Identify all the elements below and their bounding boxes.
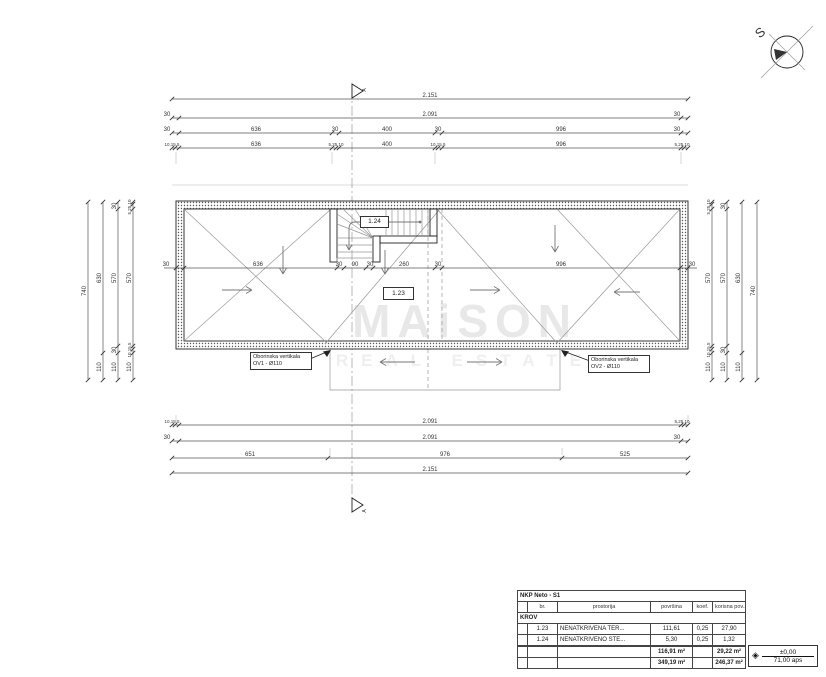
table-total-row: 349,19 m² 246,37 m² xyxy=(518,658,746,669)
section-marker-top: A xyxy=(362,88,368,92)
room-label-terrace: 1.23 xyxy=(383,287,414,300)
dim-label: 110 xyxy=(112,362,118,372)
elevation-absolute: 71,00 aps xyxy=(762,657,814,664)
dim-label: 10,15,5 xyxy=(164,419,180,424)
row-koef: 0,25 xyxy=(693,624,713,635)
room-label-stair: 1.24 xyxy=(360,216,389,228)
dim-label: 30 xyxy=(674,112,681,118)
level-symbol-icon: ◈ xyxy=(752,651,759,661)
total-area: 349,19 m² xyxy=(651,658,693,669)
table-title: NKP Neto - S1 xyxy=(518,591,746,602)
dim-label: 996 xyxy=(556,142,567,148)
dim-label: 996 xyxy=(556,262,567,268)
extension-lines xyxy=(172,152,688,455)
drain-leaders xyxy=(305,350,590,361)
dim-label: 651 xyxy=(245,452,256,458)
table-row: 1.23 NENATKRIVENA TER... 111,61 0,25 27,… xyxy=(518,624,746,635)
drain-label-ov1: Oborinska vertikala OV1 - Ø110 xyxy=(250,352,312,370)
dim-label: 30 xyxy=(721,346,727,353)
row-name: NENATKRIVENO STE... xyxy=(558,635,651,647)
dim-label: 30 xyxy=(332,127,339,133)
ov2-line1: Oborinska vertikala xyxy=(591,357,647,364)
table-title-row: NKP Neto - S1 xyxy=(518,591,746,602)
dim-label: 30 xyxy=(674,435,681,441)
dim-label: 570 xyxy=(706,272,712,283)
table-row: 1.24 NENATKRIVENO STE... 5,30 0,25 1,32 xyxy=(518,635,746,647)
dim-label: 636 xyxy=(251,142,262,148)
dim-label: 740 xyxy=(82,285,88,296)
dim-label: 636 xyxy=(251,127,262,133)
dim-label: 110 xyxy=(706,362,712,372)
subtotal-area: 116,91 m² xyxy=(651,646,693,658)
dim-label: 30 xyxy=(435,262,442,268)
dim-label: 10,15,5 xyxy=(430,142,446,147)
dim-label: 525 xyxy=(620,452,631,458)
lower-roof-outline xyxy=(330,349,560,390)
dim-label: 400 xyxy=(382,142,393,148)
dim-label: 976 xyxy=(440,452,451,458)
ov1-line2: OV1 - Ø110 xyxy=(253,361,309,368)
dim-label: 110 xyxy=(721,362,727,372)
dim-label: 30 xyxy=(367,262,374,268)
valley-lines xyxy=(184,209,680,344)
subtotal-korisna: 29,22 m² xyxy=(713,646,746,658)
dim-label: 30 xyxy=(164,435,171,441)
area-table: NKP Neto - S1 br. prostorija površina ko… xyxy=(517,590,746,669)
table-header-row: br. prostorija površina koef. korisna po… xyxy=(518,602,746,613)
dim-label: 2.091 xyxy=(422,435,438,441)
dim-label: 2.091 xyxy=(422,419,438,425)
dim-label: 5,25,10 xyxy=(328,142,344,147)
dim-label: 5,25,10 xyxy=(706,199,711,215)
col-povrsina: površina xyxy=(651,602,693,613)
col-korisna: korisna pov... xyxy=(713,602,746,613)
dim-label: 996 xyxy=(556,127,567,133)
dim-label: 636 xyxy=(253,262,264,268)
dim-label: 570 xyxy=(112,272,118,283)
dim-label: 30 xyxy=(435,127,442,133)
row-korisna: 27,90 xyxy=(713,624,746,635)
dim-label: 5,25,10 xyxy=(674,142,690,147)
dim-label: 30 xyxy=(721,202,727,209)
outer-wall-hatch xyxy=(176,201,688,349)
row-korisna: 1,32 xyxy=(713,635,746,647)
roof-plan-drawing: A A xyxy=(0,0,826,677)
dim-label: 570 xyxy=(721,272,727,283)
dim-label: 30 xyxy=(112,202,118,209)
north-label: S xyxy=(752,24,769,41)
dim-label: 30 xyxy=(163,262,170,268)
col-blank xyxy=(518,602,528,613)
dim-label: 10,15,5 xyxy=(127,342,132,358)
col-br: br. xyxy=(528,602,558,613)
total-korisna: 246,37 m² xyxy=(713,658,746,669)
row-koef: 0,25 xyxy=(693,635,713,647)
drain-label-ov2: Oborinska vertikala OV2 - Ø110 xyxy=(588,355,650,373)
ov1-line1: Oborinska vertikala xyxy=(253,354,309,361)
dim-label: 5,25,10 xyxy=(674,419,690,424)
col-prostorija: prostorija xyxy=(558,602,651,613)
dim-label: 5,25,10 xyxy=(127,199,132,215)
dim-label: 110 xyxy=(736,362,742,372)
row-br: 1.24 xyxy=(528,635,558,647)
dim-label: 260 xyxy=(399,262,410,268)
dim-label: 2.091 xyxy=(422,112,438,118)
row-name: NENATKRIVENA TER... xyxy=(558,624,651,635)
elevation-marker: ◈ ±0,00 71,00 aps xyxy=(748,645,818,667)
ov2-line2: OV2 - Ø110 xyxy=(591,364,647,371)
dim-label: 30 xyxy=(164,127,171,133)
row-br: 1.23 xyxy=(528,624,558,635)
col-koef: koef. xyxy=(693,602,713,613)
dim-label: 10,15,5 xyxy=(706,342,711,358)
dim-label: 10,15,5 xyxy=(164,142,180,147)
dim-label: 30 xyxy=(112,346,118,353)
row-area: 111,61 xyxy=(651,624,693,635)
dim-label: 90 xyxy=(352,262,359,268)
dim-label: 30 xyxy=(674,127,681,133)
dim-label: 630 xyxy=(97,272,103,283)
dim-label: 2.151 xyxy=(422,93,438,99)
north-arrow-icon: S xyxy=(752,24,813,78)
dim-label: 30 xyxy=(689,262,696,268)
dim-label: 2.151 xyxy=(422,467,438,473)
table-section-row: KROV xyxy=(518,613,746,624)
dim-label: 570 xyxy=(127,272,133,283)
elevation-relative: ±0,00 xyxy=(762,649,814,657)
dim-label: 400 xyxy=(382,127,393,133)
dim-label: 110 xyxy=(127,362,133,372)
roof-plan-sheet: MAiSON REAL ESTATE A A xyxy=(0,0,826,677)
section-name: KROV xyxy=(518,613,746,624)
section-marker-bottom: A xyxy=(362,509,368,513)
dim-label: 630 xyxy=(736,272,742,283)
dim-label: 30 xyxy=(164,112,171,118)
dim-label: 110 xyxy=(97,362,103,372)
table-subtotal-row: 116,91 m² 29,22 m² xyxy=(518,646,746,658)
row-area: 5,30 xyxy=(651,635,693,647)
dim-label: 30 xyxy=(336,262,343,268)
dim-label: 740 xyxy=(751,285,757,296)
